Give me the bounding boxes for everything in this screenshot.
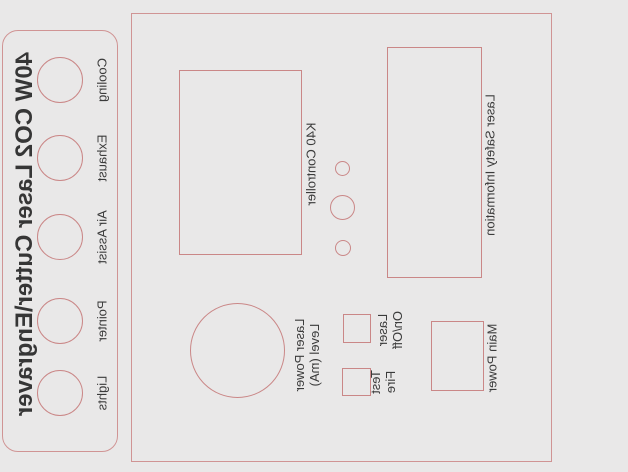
laser-safety-cutout xyxy=(387,47,482,278)
main-power-cutout xyxy=(431,321,484,391)
test-fire-cutout xyxy=(342,368,371,396)
k40-controller-cutout xyxy=(179,70,302,255)
mirrored-design-layer: Cooling Exhaust Air Assist Pointer Light… xyxy=(0,0,628,472)
indicator-hole-large xyxy=(330,195,355,220)
lights-hole xyxy=(37,370,83,416)
laser-cut-design-canvas: Cooling Exhaust Air Assist Pointer Light… xyxy=(0,0,628,472)
laser-power-meter-hole xyxy=(190,303,285,398)
pointer-hole xyxy=(37,298,83,344)
indicator-hole-small-bottom xyxy=(335,240,351,256)
cooling-hole xyxy=(37,57,83,103)
indicator-hole-small-top xyxy=(335,161,350,176)
laser-onoff-cutout xyxy=(343,314,371,343)
air-assist-hole xyxy=(37,214,83,260)
exhaust-hole xyxy=(37,135,83,181)
